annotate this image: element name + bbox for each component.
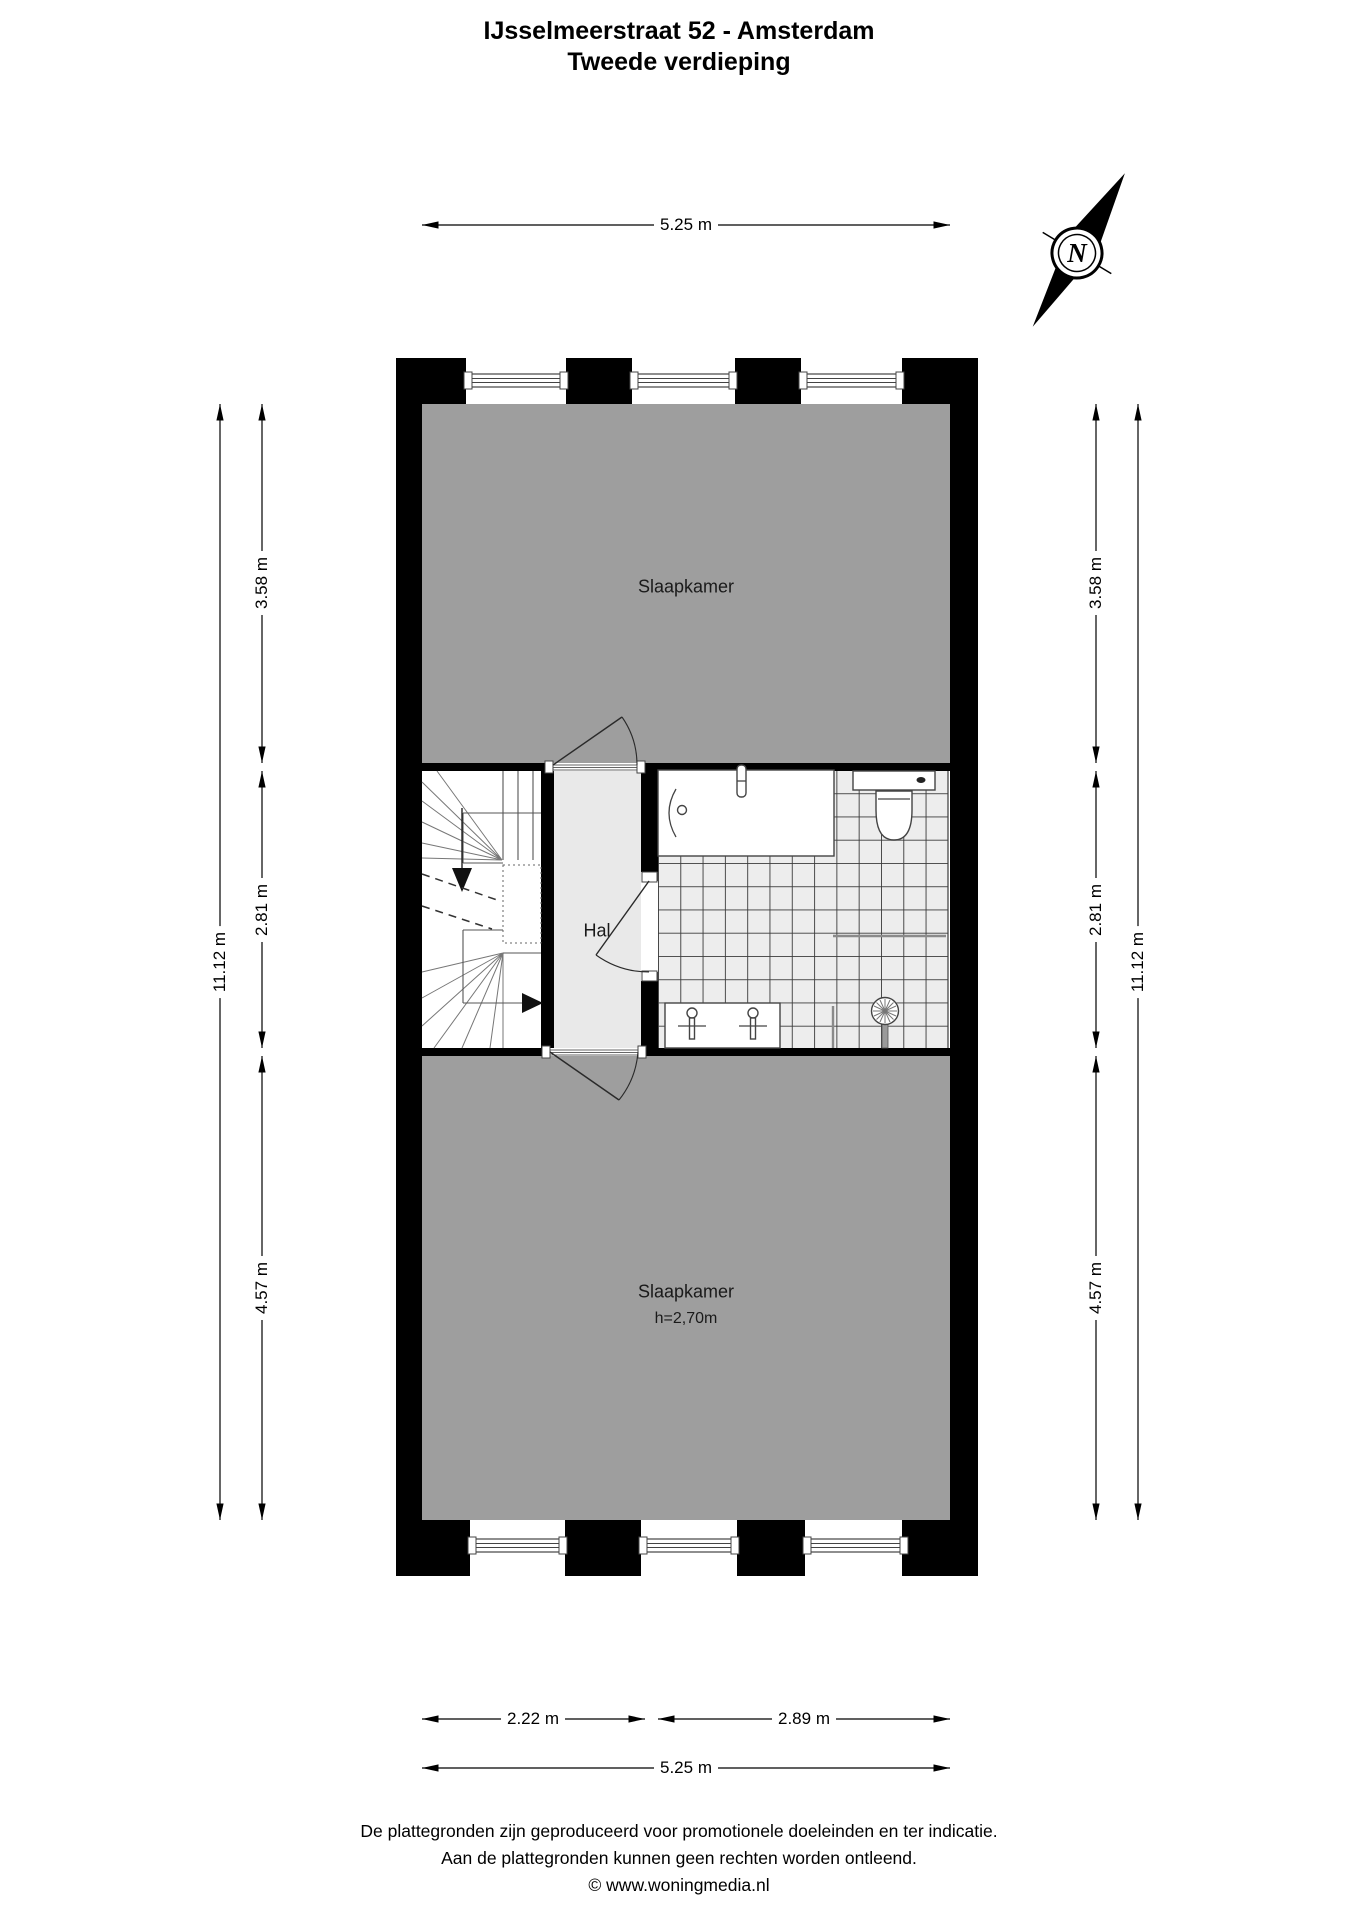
dim-right-seg-2: 2.81 m xyxy=(1085,878,1107,942)
dim-right-total: 11.12 m xyxy=(1127,926,1149,998)
window-bottom-2 xyxy=(639,1537,739,1554)
dim-bottom-right: 2.89 m xyxy=(772,1708,836,1730)
room-label-bedroom-bottom: Slaapkamer xyxy=(638,1282,734,1303)
disclaimer-footer: De plattegronden zijn geproduceerd voor … xyxy=(0,1818,1358,1899)
room-label-hall: Hal xyxy=(583,921,610,942)
dim-left-seg-1: 3.58 m xyxy=(251,551,273,615)
title-address: IJsselmeerstraat 52 - Amsterdam xyxy=(0,16,1358,47)
wall-hall-bathroom-upper xyxy=(641,771,658,872)
dim-left-seg-2: 2.81 m xyxy=(251,878,273,942)
footer-line-2: Aan de plattegronden kunnen geen rechten… xyxy=(0,1845,1358,1872)
dim-left-seg-3: 4.57 m xyxy=(251,1256,273,1320)
window-top-2 xyxy=(630,372,737,389)
dim-bottom-left: 2.22 m xyxy=(501,1708,565,1730)
page-title: IJsselmeerstraat 52 - Amsterdam Tweede v… xyxy=(0,16,1358,78)
footer-line-1: De plattegronden zijn geproduceerd voor … xyxy=(0,1818,1358,1845)
room-label-bedroom-top: Slaapkamer xyxy=(638,577,734,598)
title-floor: Tweede verdieping xyxy=(0,47,1358,78)
floorplan-drawing: N xyxy=(0,0,1358,1920)
window-top-1 xyxy=(464,372,568,389)
bathtub xyxy=(658,765,834,856)
wall-stairs-hall xyxy=(541,771,554,1048)
left-wall xyxy=(396,358,422,1576)
wall-bottom-of-bathroom xyxy=(646,1048,950,1056)
room-floors xyxy=(422,404,950,1520)
right-wall xyxy=(950,358,978,1576)
footer-copyright: © www.woningmedia.nl xyxy=(0,1872,1358,1899)
window-bottom-3 xyxy=(803,1537,908,1554)
wall-hall-bathroom-lower xyxy=(641,981,658,1048)
window-top-3 xyxy=(799,372,904,389)
dim-right-seg-3: 4.57 m xyxy=(1085,1256,1107,1320)
double-washbasin xyxy=(665,1003,780,1048)
compass-letter: N xyxy=(1066,238,1088,268)
dim-right-seg-1: 3.58 m xyxy=(1085,551,1107,615)
dim-top-total: 5.25 m xyxy=(654,214,718,236)
floorplan-page: N IJsselmeerstraat 52 - Amsterdam Tweede… xyxy=(0,0,1358,1920)
window-bottom-1 xyxy=(468,1537,567,1554)
flush-button xyxy=(917,777,926,783)
compass-north-icon: N xyxy=(998,153,1159,348)
wall-bottom-of-stairs xyxy=(422,1048,542,1056)
ceiling-height-note: h=2,70m xyxy=(655,1310,718,1328)
dim-left-total: 11.12 m xyxy=(209,926,231,998)
dim-bottom-total: 5.25 m xyxy=(654,1757,718,1779)
wall-top-of-hall xyxy=(422,763,545,771)
